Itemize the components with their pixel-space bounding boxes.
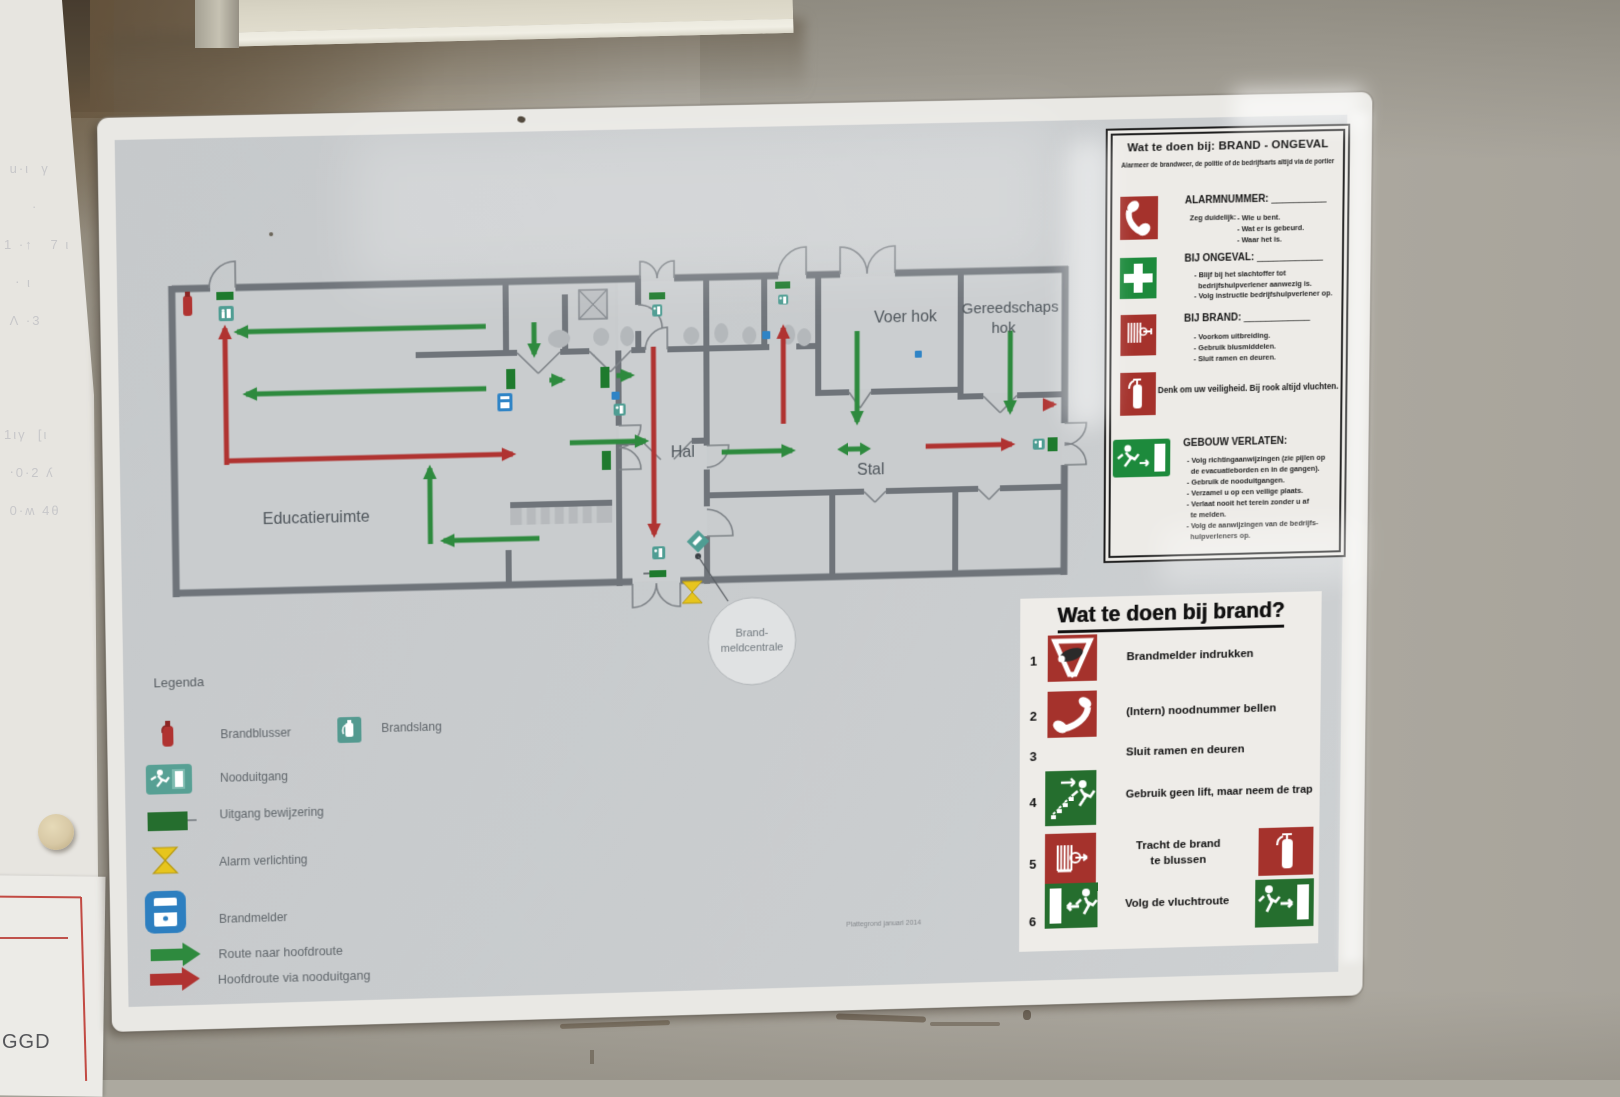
svg-text:Hal: Hal xyxy=(671,443,695,461)
svg-text:Alarm verlichting: Alarm verlichting xyxy=(219,853,308,869)
svg-text:Voer hok: Voer hok xyxy=(874,307,938,326)
svg-text:Educatieruimte: Educatieruimte xyxy=(263,508,370,528)
svg-text:hok: hok xyxy=(991,320,1015,337)
svg-text:Plattegrond januari 2014: Plattegrond januari 2014 xyxy=(846,919,921,929)
svg-text:Brandslang: Brandslang xyxy=(381,720,442,735)
svg-text:meldcentrale: meldcentrale xyxy=(721,642,783,655)
svg-text:Brand-: Brand- xyxy=(736,627,769,639)
svg-text:Route naar hoofdroute: Route naar hoofdroute xyxy=(218,943,343,961)
svg-text:Hoofdroute via nooduitgang: Hoofdroute via nooduitgang xyxy=(218,968,371,987)
svg-text:Nooduitgang: Nooduitgang xyxy=(220,769,288,784)
svg-text:Brandblusser: Brandblusser xyxy=(220,726,291,741)
svg-text:Gereedschaps: Gereedschaps xyxy=(962,299,1059,318)
svg-text:Brandmelder: Brandmelder xyxy=(219,910,288,925)
svg-text:Legenda: Legenda xyxy=(153,674,205,690)
svg-text:Uitgang bewijzering: Uitgang bewijzering xyxy=(219,805,324,821)
svg-text:Stal: Stal xyxy=(857,461,884,479)
